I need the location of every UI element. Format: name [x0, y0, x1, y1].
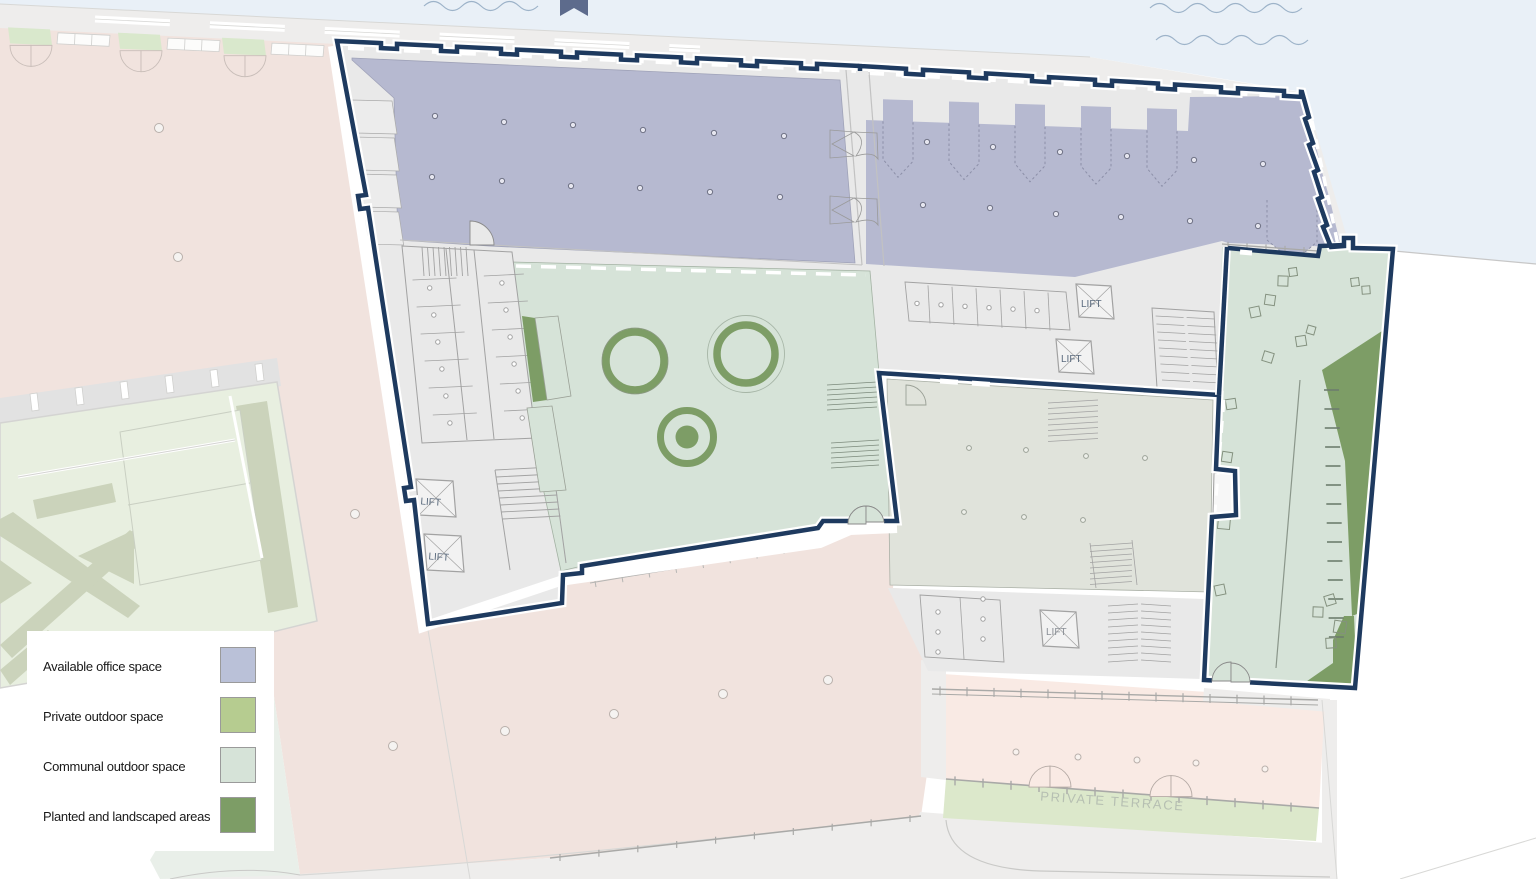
svg-text:LIFT: LIFT [1061, 354, 1082, 365]
svg-text:LIFT: LIFT [428, 551, 449, 563]
svg-text:LIFT: LIFT [1081, 299, 1102, 310]
svg-text:LIFT: LIFT [1046, 627, 1067, 638]
svg-text:LIFT: LIFT [420, 496, 441, 508]
